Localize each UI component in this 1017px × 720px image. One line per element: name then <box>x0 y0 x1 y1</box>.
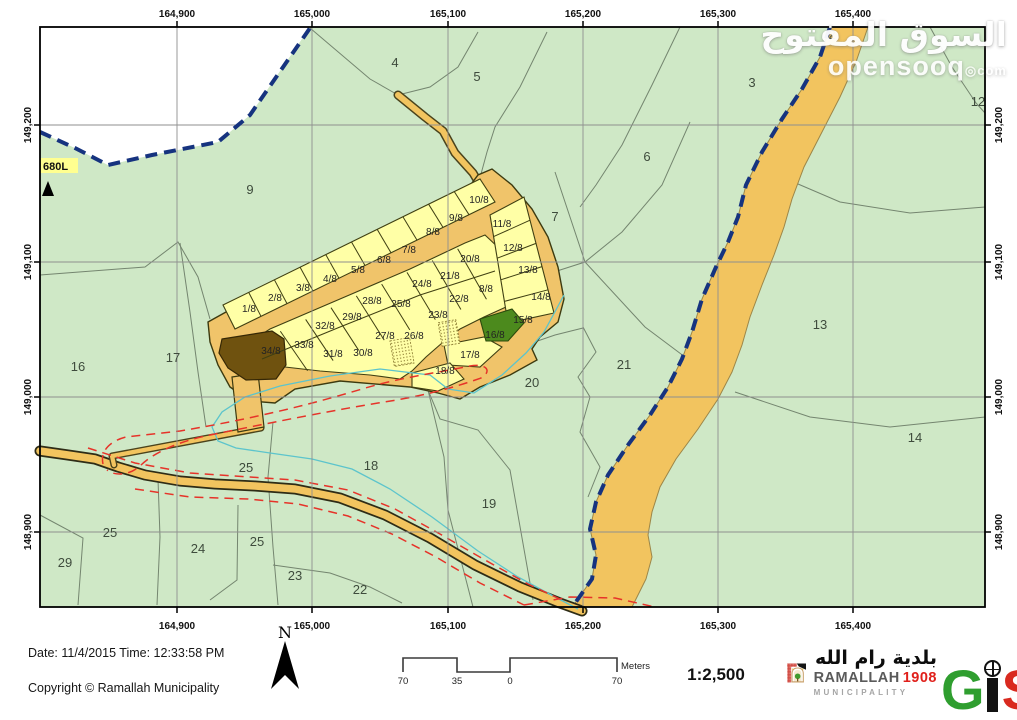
gis-letter-i <box>984 660 1001 712</box>
plot-parcel-label: 25/8 <box>391 299 411 310</box>
y-axis-label: 149,200 <box>23 106 34 143</box>
scale-bar: 7035070 Meters <box>398 658 651 687</box>
map-export-page: 680L 24531269713161721201425181925242529… <box>0 0 1017 720</box>
stipple-mark-26-8 <box>438 320 460 347</box>
area-parcel-label: 9 <box>246 182 253 197</box>
date-time-stamp: Date: 11/4/2015 Time: 12:33:58 PM <box>28 646 224 660</box>
scale-bar-numbers: 7035070 <box>398 676 623 687</box>
area-parcel-label: 14 <box>908 430 922 445</box>
area-parcel-label: 22 <box>353 582 367 597</box>
area-parcel-label: 16 <box>71 359 85 374</box>
ramallah-subtitle: MUNICIPALITY <box>814 688 909 697</box>
globe-icon <box>984 660 1001 677</box>
north-label: N <box>278 623 292 642</box>
landmark-label: 680L <box>43 161 68 173</box>
ramallah-year: 1908 <box>903 670 937 686</box>
plot-parcel-label: 31/8 <box>323 349 343 360</box>
plot-parcel-label: 29/8 <box>342 312 362 323</box>
map-canvas: 680L 24531269713161721201425181925242529… <box>40 27 985 611</box>
plot-parcel-label: 4/8 <box>323 274 337 285</box>
plot-parcel-label: 8/8 <box>479 284 493 295</box>
scale-ratio: 1:2,500 <box>687 665 745 684</box>
plot-parcel-label: 20/8 <box>460 254 480 265</box>
plot-parcel-label: 2/8 <box>268 293 282 304</box>
y-axis-label: 149,000 <box>994 378 1005 415</box>
plot-parcel-label: 23/8 <box>428 310 448 321</box>
area-parcel-label: 7 <box>551 209 558 224</box>
scale-bar-shape <box>403 658 617 672</box>
plot-parcel-label: 28/8 <box>362 296 382 307</box>
x-axis-label: 165,400 <box>835 621 872 632</box>
plot-parcel-label: 32/8 <box>315 321 335 332</box>
plot-parcel-label: 24/8 <box>412 279 432 290</box>
plot-parcel-label: 26/8 <box>404 331 424 342</box>
gis-letter-s: S <box>1002 666 1017 714</box>
x-axis-label: 165,300 <box>700 621 737 632</box>
ramallah-emblem-icon <box>787 638 807 708</box>
y-axis-label: 148,900 <box>23 513 34 550</box>
area-parcel-label: 29 <box>58 555 72 570</box>
plot-parcel-label: 8/8 <box>426 227 440 238</box>
area-parcel-label: 25 <box>103 525 117 540</box>
plot-parcel-label: 9/8 <box>449 213 463 224</box>
copyright-note: Copyright © Ramallah Municipality <box>28 681 219 695</box>
x-axis-label: 165,100 <box>430 621 467 632</box>
plot-parcel-label: 33/8 <box>294 340 314 351</box>
area-parcel-label: 5 <box>473 69 480 84</box>
plot-parcel-label: 3/8 <box>296 283 310 294</box>
ramallah-name: RAMALLAH1908 <box>814 671 937 686</box>
x-axis-label: 164,900 <box>159 621 196 632</box>
gis-logo: G S <box>941 634 1017 714</box>
plot-parcel-label: 13/8 <box>518 265 538 276</box>
area-parcel-label: 18 <box>364 458 378 473</box>
area-parcel-label: 25 <box>239 460 253 475</box>
plot-parcel-label: 30/8 <box>353 348 373 359</box>
gis-letter-g: G <box>941 666 983 714</box>
plot-parcel-label: 7/8 <box>402 245 416 256</box>
plot-parcel-label: 21/8 <box>440 271 460 282</box>
plot-parcel-label: 11/8 <box>493 219 512 230</box>
area-parcel-label: 12 <box>971 94 985 109</box>
ramallah-municipality-logo: بلدية رام الله RAMALLAH1908 MUNICIPALITY <box>787 633 937 713</box>
y-axis-label: 149,000 <box>23 378 34 415</box>
plot-parcel-label: 17/8 <box>460 350 480 361</box>
x-axis-label: 165,200 <box>565 621 602 632</box>
area-parcel-label: 6 <box>643 149 650 164</box>
scale-bar-number: 35 <box>452 676 463 687</box>
plot-parcel-label: 15/8 <box>513 315 533 326</box>
scale-bar-number: 70 <box>398 676 409 687</box>
area-parcel-label: 20 <box>525 375 539 390</box>
area-parcel-label: 17 <box>166 350 180 365</box>
area-parcel-label: 21 <box>617 357 631 372</box>
y-axis-label: 148,900 <box>994 513 1005 550</box>
plot-parcel-label: 5/8 <box>351 265 365 276</box>
plot-parcel-label: 12/8 <box>503 243 523 254</box>
plot-parcel-label: 27/8 <box>375 331 395 342</box>
ramallah-logo-text: بلدية رام الله RAMALLAH1908 MUNICIPALITY <box>814 649 937 697</box>
y-axis-label: 149,100 <box>23 243 34 280</box>
plot-parcel-label: 34/8 <box>261 346 281 357</box>
area-parcel-label: 13 <box>813 317 827 332</box>
scale-unit-label: Meters <box>621 661 650 672</box>
plot-parcel-label: 6/8 <box>377 255 391 266</box>
area-parcel-label: 4 <box>391 55 398 70</box>
x-axis-label: 164,900 <box>159 9 196 20</box>
area-parcel-label: 25 <box>250 534 264 549</box>
area-parcel-label: 24 <box>191 541 205 556</box>
x-axis-label: 165,200 <box>565 9 602 20</box>
x-axis-label: 165,100 <box>430 9 467 20</box>
x-axis-label: 165,000 <box>294 621 331 632</box>
x-axis-label: 165,400 <box>835 9 872 20</box>
area-parcel-label: 2 <box>828 27 835 42</box>
plot-parcel-label: 22/8 <box>449 294 469 305</box>
plot-parcel-label: 16/8 <box>485 330 505 341</box>
ramallah-arabic-calligraphy: بلدية رام الله <box>815 649 937 668</box>
area-parcel-label: 23 <box>288 568 302 583</box>
y-axis-label: 149,200 <box>994 106 1005 143</box>
x-axis-label: 165,300 <box>700 9 737 20</box>
plot-parcel-label: 14/8 <box>531 292 551 303</box>
area-parcel-label: 19 <box>482 496 496 511</box>
scale-bar-number: 0 <box>507 676 512 687</box>
north-arrow: N <box>271 623 299 689</box>
area-parcel-label: 3 <box>748 75 755 90</box>
plot-parcel-label: 1/8 <box>242 304 256 315</box>
cadastral-map: 680L 24531269713161721201425181925242529… <box>0 0 1017 720</box>
x-axis-label: 165,000 <box>294 9 331 20</box>
north-arrow-icon <box>271 641 299 689</box>
plot-parcel-label: 18/8 <box>435 366 455 377</box>
y-axis-label: 149,100 <box>994 243 1005 280</box>
scale-bar-number: 70 <box>612 676 623 687</box>
plot-parcel-label: 10/8 <box>469 195 489 206</box>
